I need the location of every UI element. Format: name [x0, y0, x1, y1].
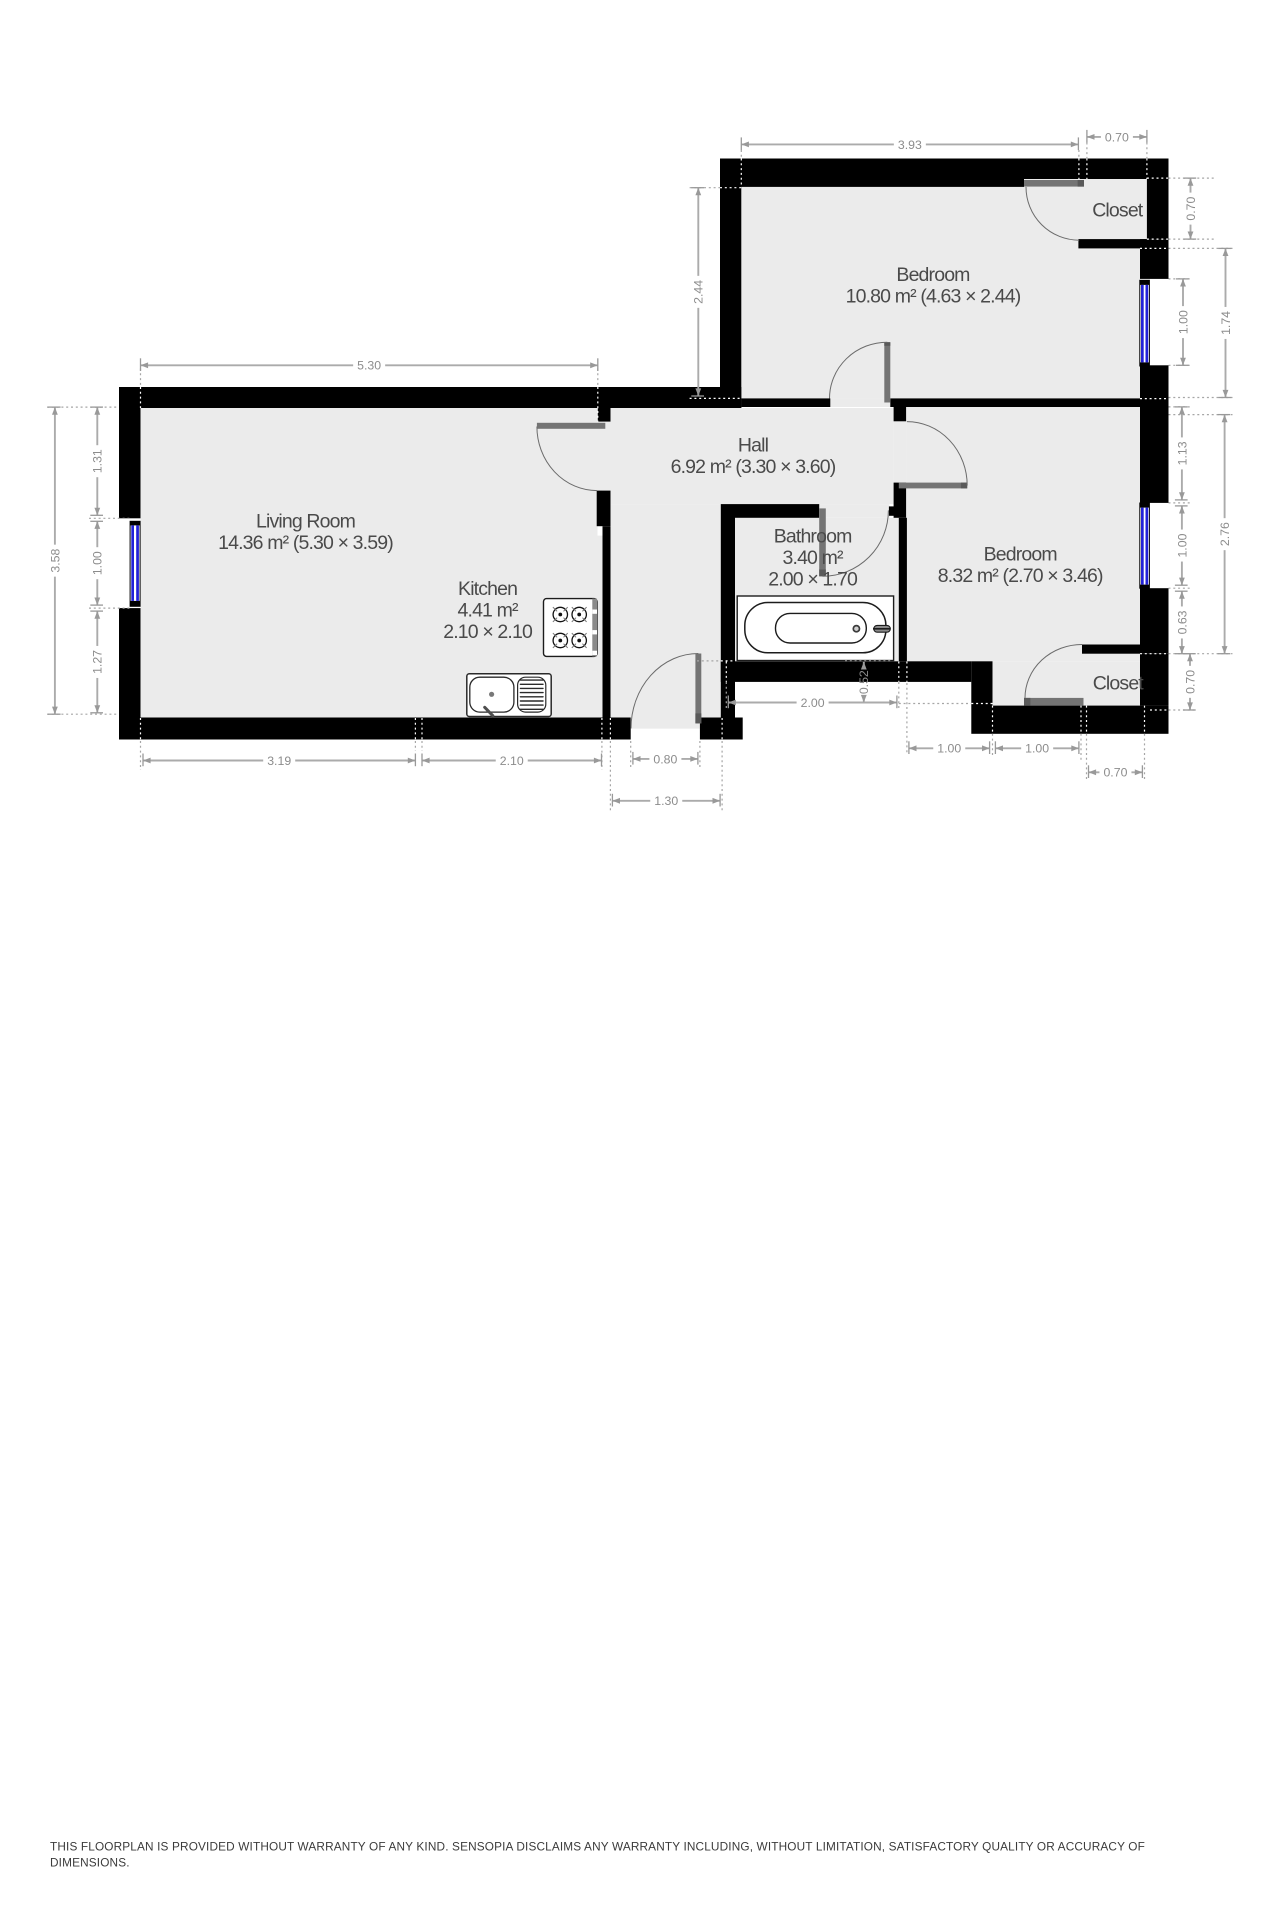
svg-text:2.76: 2.76 [1218, 522, 1232, 546]
svg-text:10.80 m² (4.63 × 2.44): 10.80 m² (4.63 × 2.44) [846, 286, 1021, 308]
svg-text:0.52: 0.52 [857, 670, 871, 694]
svg-text:1.31: 1.31 [91, 449, 105, 473]
svg-text:6.92 m² (3.30 × 3.60): 6.92 m² (3.30 × 3.60) [671, 456, 836, 478]
svg-text:Living Room: Living Room [256, 510, 355, 532]
svg-text:1.00: 1.00 [91, 551, 105, 575]
svg-text:Hall: Hall [738, 434, 769, 456]
svg-text:5.30: 5.30 [357, 359, 381, 373]
svg-text:2.10: 2.10 [500, 754, 524, 768]
svg-text:0.70: 0.70 [1184, 196, 1198, 220]
svg-text:1.00: 1.00 [1176, 310, 1190, 334]
svg-text:8.32 m² (2.70 × 3.46): 8.32 m² (2.70 × 3.46) [938, 565, 1103, 587]
svg-text:1.00: 1.00 [1025, 742, 1049, 756]
svg-text:Closet: Closet [1092, 199, 1144, 221]
svg-text:3.40 m²: 3.40 m² [783, 547, 845, 569]
svg-text:14.36 m² (5.30 × 3.59): 14.36 m² (5.30 × 3.59) [218, 532, 393, 554]
svg-text:Bedroom: Bedroom [896, 264, 969, 286]
svg-text:1.27: 1.27 [91, 650, 105, 674]
svg-text:Bathroom: Bathroom [774, 526, 852, 548]
svg-text:1.00: 1.00 [937, 742, 961, 756]
svg-text:1.30: 1.30 [654, 794, 678, 808]
svg-text:0.63: 0.63 [1175, 610, 1189, 634]
svg-text:1.74: 1.74 [1219, 311, 1233, 335]
svg-text:2.10 × 2.10: 2.10 × 2.10 [443, 621, 533, 643]
svg-text:2.00 × 1.70: 2.00 × 1.70 [768, 569, 858, 591]
svg-text:DIMENSIONS.: DIMENSIONS. [50, 1856, 130, 1870]
svg-text:2.44: 2.44 [692, 280, 706, 304]
svg-text:Kitchen: Kitchen [458, 578, 517, 600]
svg-text:Closet: Closet [1093, 673, 1145, 695]
svg-text:1.13: 1.13 [1175, 441, 1189, 465]
svg-text:0.70: 0.70 [1183, 670, 1197, 694]
svg-text:Bedroom: Bedroom [984, 543, 1057, 565]
svg-text:THIS FLOORPLAN IS PROVIDED WIT: THIS FLOORPLAN IS PROVIDED WITHOUT WARRA… [50, 1840, 1145, 1854]
svg-text:0.80: 0.80 [653, 752, 677, 766]
svg-text:0.70: 0.70 [1103, 766, 1127, 780]
svg-text:1.00: 1.00 [1175, 533, 1189, 557]
svg-text:4.41 m²: 4.41 m² [458, 600, 520, 622]
svg-text:2.00: 2.00 [801, 696, 825, 710]
svg-text:3.93: 3.93 [898, 138, 922, 152]
svg-text:0.70: 0.70 [1105, 130, 1129, 144]
svg-text:3.19: 3.19 [267, 754, 291, 768]
svg-text:3.58: 3.58 [48, 549, 62, 573]
